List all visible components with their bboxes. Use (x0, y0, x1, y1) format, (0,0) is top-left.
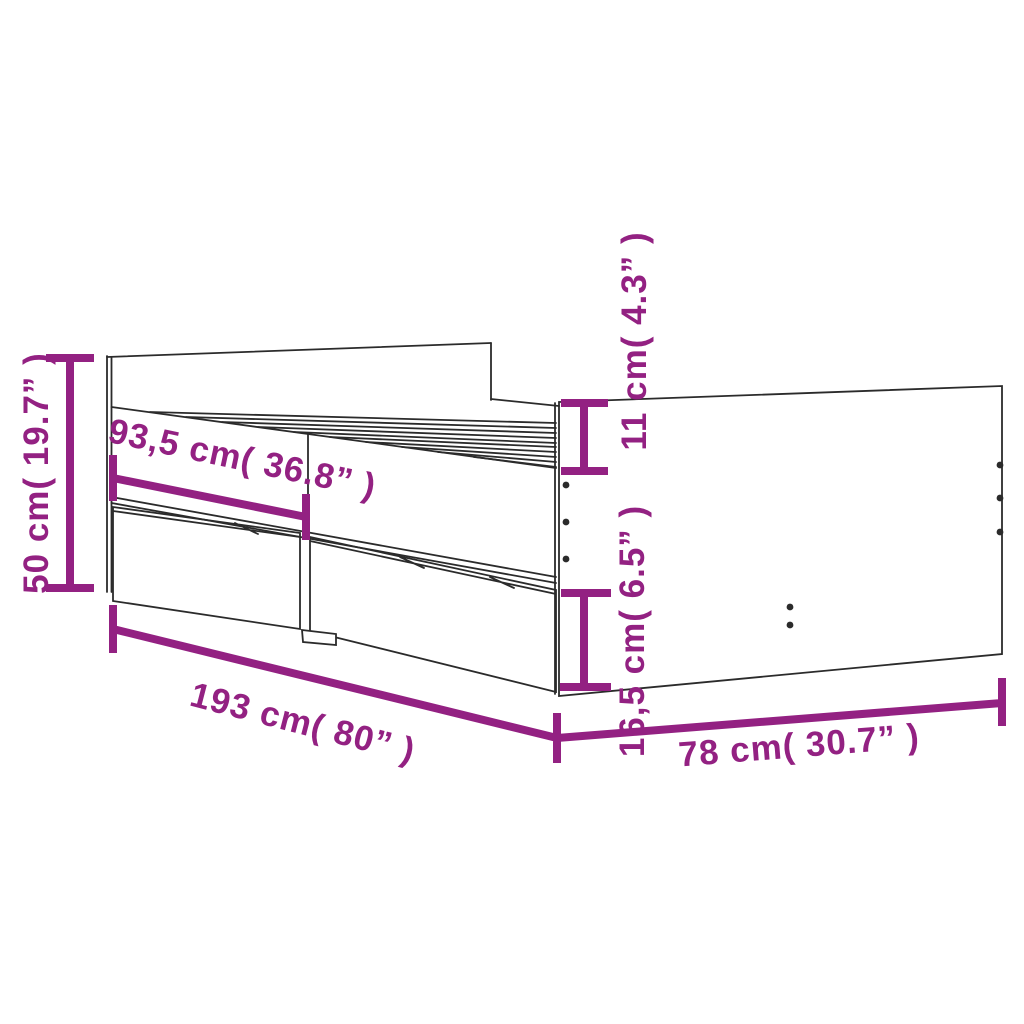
screw-hole (997, 529, 1004, 536)
dim-total-height: 50 cm( 19.7” ) (17, 352, 94, 594)
screw-hole (563, 482, 570, 489)
screw-hole (563, 519, 570, 526)
bed-frame-dimension-diagram: 50 cm( 19.7” ) 93,5 cm( 36.8” ) 11 cm( 4… (0, 0, 1024, 1024)
headboard-top-edge (107, 343, 491, 357)
dim-total-height-label: 50 cm( 19.7” ) (17, 352, 56, 594)
screw-hole (787, 622, 794, 629)
dim-drawer-height: 16,5 cm( 6.5” ) (560, 505, 652, 757)
diagram-canvas: 50 cm( 19.7” ) 93,5 cm( 36.8” ) 11 cm( 4… (0, 0, 1024, 1024)
screw-hole (563, 556, 570, 563)
dimension-annotations: 50 cm( 19.7” ) 93,5 cm( 36.8” ) 11 cm( 4… (17, 231, 1002, 774)
screw-hole (997, 495, 1004, 502)
dim-total-length-label: 193 cm( 80” ) (186, 675, 419, 771)
dim-drawer-height-line (560, 593, 611, 687)
dim-drawer-height-label: 16,5 cm( 6.5” ) (613, 505, 652, 757)
dim-total-length: 193 cm( 80” ) (113, 605, 557, 771)
dim-footboard-top-line (561, 403, 608, 471)
dim-footboard-top-label: 11 cm( 4.3” ) (615, 231, 654, 450)
side-rail-bottom-edge (112, 497, 557, 583)
center-leg (302, 630, 336, 645)
screw-hole (997, 462, 1004, 469)
dim-footboard-top: 11 cm( 4.3” ) (561, 231, 654, 471)
screw-hole (787, 604, 794, 611)
bed-line-drawing (107, 343, 1003, 696)
foot-inner-panel-edge (491, 399, 559, 406)
